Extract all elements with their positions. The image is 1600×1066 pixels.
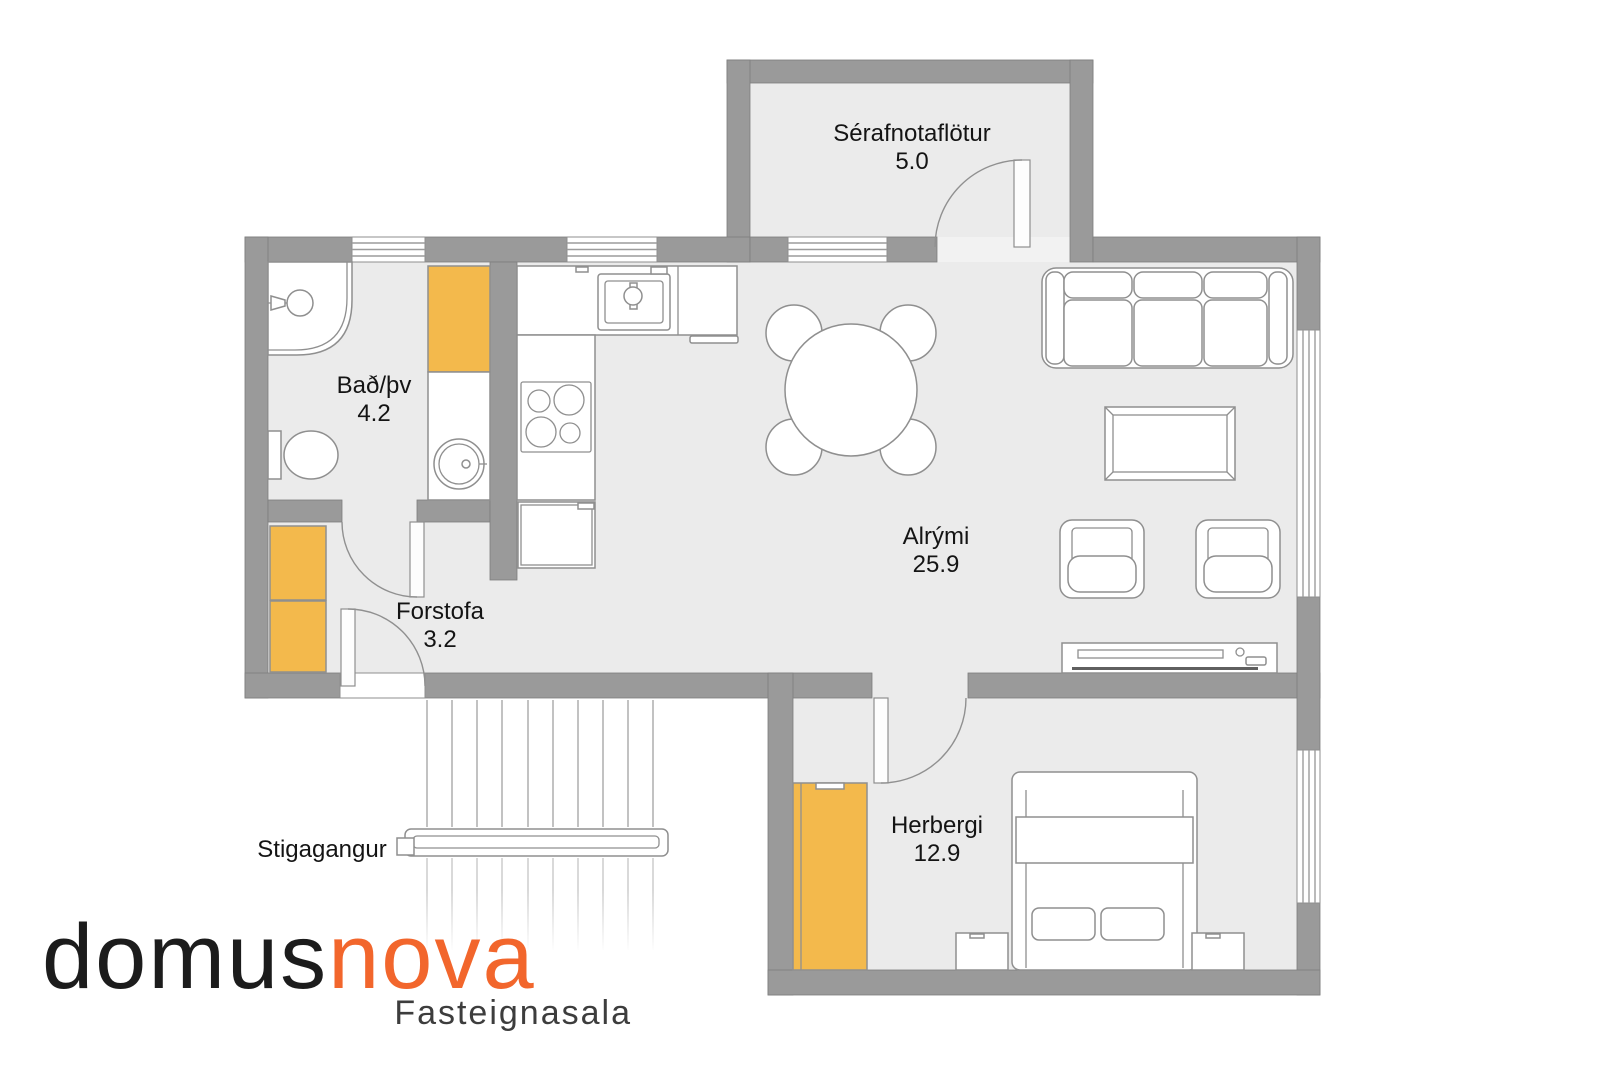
kitchen-counter-left — [517, 335, 595, 500]
stair-newel-post — [397, 838, 414, 855]
bedroom-furniture — [793, 772, 1244, 970]
logo-subtitle: Fasteignasala — [394, 994, 632, 1032]
wall-segment — [750, 237, 788, 262]
logo-part-domus: domus — [42, 906, 328, 1008]
bed-pillow-right — [1101, 908, 1164, 940]
wall-segment — [490, 262, 517, 580]
wall-segment — [425, 237, 567, 262]
wall-segment — [727, 60, 750, 262]
washing-machine-knob — [462, 460, 470, 468]
wall-segment — [1297, 237, 1320, 330]
sofa-armrest-right — [1269, 272, 1287, 364]
washing-machine-icon — [434, 439, 484, 489]
wardrobe — [793, 783, 867, 970]
nightstand-right-knob — [1206, 934, 1220, 938]
hall-cabinet-upper — [270, 526, 326, 600]
wall-segment — [727, 60, 1093, 83]
sofa-armrest-left — [1046, 272, 1064, 364]
toilet-tank — [268, 431, 281, 479]
dining-table — [785, 324, 917, 456]
sofa-seat-cushions — [1064, 300, 1267, 366]
room-area-alrymi: 25.9 — [913, 551, 960, 578]
wall-segment — [887, 237, 937, 262]
bed-blanket — [1016, 817, 1193, 863]
dining-set — [766, 305, 936, 475]
room-label-bad: Bað/þv — [337, 372, 412, 399]
wall-segment — [417, 500, 490, 522]
stair-handrail — [405, 829, 668, 856]
wall-segment — [657, 237, 750, 262]
faucet-control — [651, 267, 667, 274]
floorplan: Sérafnotaflötur 5.0 Bað/þv 4.2 Forstofa … — [0, 0, 1600, 1066]
door-leaf-bedroom — [874, 698, 888, 783]
floor-patio-doorway — [937, 237, 1070, 262]
room-area-forstofa: 3.2 — [423, 626, 456, 653]
door-leaf-entrance — [341, 609, 355, 686]
fridge — [518, 502, 595, 568]
wall-segment — [245, 673, 340, 698]
floorplan-page: Sérafnotaflötur 5.0 Bað/þv 4.2 Forstofa … — [0, 0, 1600, 1066]
bed-pillow-left — [1032, 908, 1095, 940]
fridge-handle — [578, 503, 594, 509]
bath-cabinet — [428, 266, 490, 372]
room-label-forstofa: Forstofa — [396, 598, 485, 625]
hall-cabinets — [270, 526, 326, 672]
wall-segment — [1093, 237, 1320, 262]
wall-segment — [768, 673, 793, 995]
room-area-serafnotaflotur: 5.0 — [895, 148, 928, 175]
floor-bedroom-doorway — [872, 673, 968, 698]
room-label-alrymi: Alrými — [903, 523, 970, 550]
coffee-table — [1105, 407, 1235, 480]
tv-bench-remote — [1246, 657, 1266, 665]
wardrobe-notch — [816, 783, 844, 789]
wall-segment — [268, 500, 342, 522]
armchair-right — [1196, 520, 1280, 598]
door-leaf-bath — [410, 522, 424, 597]
room-label-stigagangur: Stigagangur — [257, 836, 386, 863]
stair-treads-upper — [427, 700, 653, 827]
wall-segment — [1297, 597, 1320, 750]
shower-head-icon — [287, 290, 313, 316]
room-label-herbergi: Herbergi — [891, 812, 983, 839]
armchair-left — [1060, 520, 1144, 598]
room-area-bad: 4.2 — [357, 400, 390, 427]
room-label-serafnotaflotur: Sérafnotaflötur — [833, 120, 990, 147]
wall-segment — [968, 673, 1320, 698]
wall-segment — [425, 673, 872, 698]
logo-part-nova: nova — [328, 906, 536, 1008]
door-leaf-patio — [1014, 160, 1030, 247]
dishwasher-handle — [690, 336, 738, 343]
wall-segment — [1070, 60, 1093, 262]
toilet-bowl — [284, 431, 338, 479]
sofa-back-cushions — [1064, 272, 1267, 298]
counter-detail — [576, 267, 588, 272]
logo-wordmark: domusnova — [42, 906, 536, 1008]
nightstand-left-knob — [970, 934, 984, 938]
wall-segment — [768, 970, 1320, 995]
hall-cabinet-lower — [270, 601, 326, 672]
wall-segment — [245, 237, 268, 698]
faucet-icon — [624, 287, 642, 305]
room-area-herbergi: 12.9 — [914, 840, 961, 867]
